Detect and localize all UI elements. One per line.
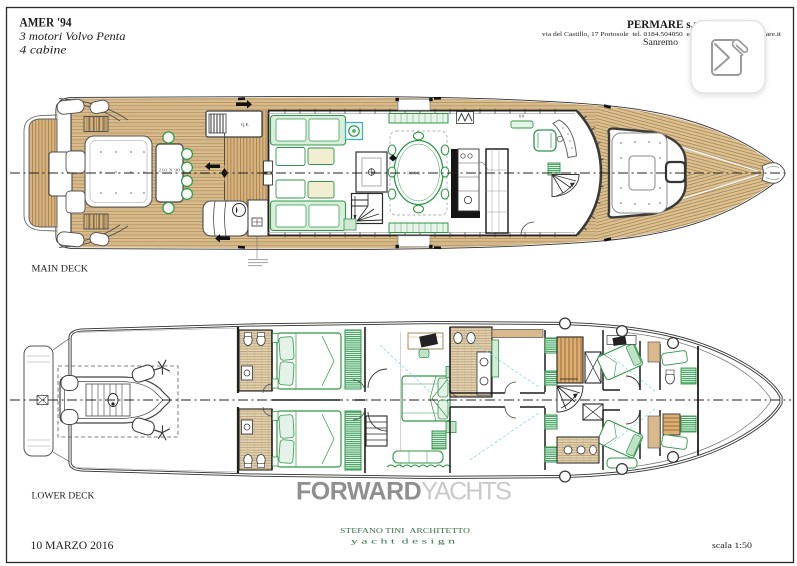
- svg-text:0.8: 0.8: [519, 114, 524, 119]
- svg-text:AMER '94: AMER '94: [20, 16, 73, 30]
- svg-text:190 X 42: 190 X 42: [407, 172, 421, 176]
- svg-text:210 X 90: 210 X 90: [159, 168, 181, 172]
- svg-text:4 cabine: 4 cabine: [20, 45, 67, 57]
- svg-text:10 MARZO 2016: 10 MARZO 2016: [31, 540, 114, 552]
- svg-text:Q.E.: Q.E.: [241, 122, 249, 127]
- svg-text:Sanremo: Sanremo: [643, 37, 679, 47]
- svg-text:MAIN DECK: MAIN DECK: [32, 265, 89, 275]
- svg-text:FORWARDYACHTS: FORWARDYACHTS: [296, 478, 511, 506]
- svg-text:scala 1:50: scala 1:50: [712, 540, 752, 550]
- svg-text:3 motori Volvo Penta: 3 motori Volvo Penta: [18, 31, 125, 43]
- svg-text:STEFANO TINI ARCHITETTO: STEFANO TINI ARCHITETTO: [340, 526, 471, 535]
- svg-text:y a c h t d e s i g n: y a c h t d e s i g n: [351, 538, 456, 546]
- svg-text:LOWER DECK: LOWER DECK: [32, 492, 95, 502]
